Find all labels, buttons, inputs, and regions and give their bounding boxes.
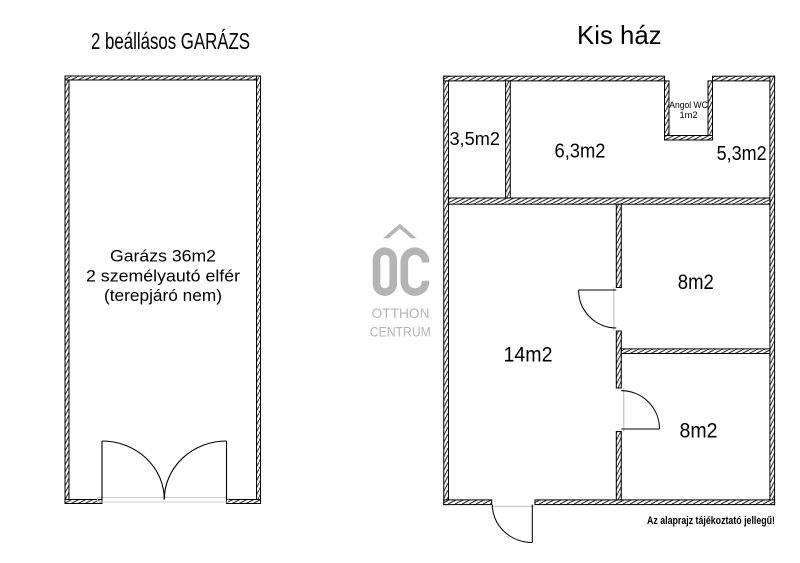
svg-text:2 személyautó elfér: 2 személyautó elfér [86, 268, 241, 286]
svg-text:OTTHON: OTTHON [372, 306, 430, 321]
svg-text:6,3m2: 6,3m2 [555, 140, 606, 163]
svg-text:8m2: 8m2 [678, 270, 714, 294]
svg-text:Kis ház: Kis ház [577, 20, 662, 50]
svg-text:8m2: 8m2 [680, 419, 718, 443]
svg-text:14m2: 14m2 [504, 343, 553, 367]
svg-text:Garázs 36m2: Garázs 36m2 [110, 248, 216, 266]
svg-text:(terepjáró nem): (terepjáró nem) [104, 287, 222, 305]
svg-text:CENTRUM: CENTRUM [370, 324, 431, 339]
svg-text:Angol WC: Angol WC [669, 100, 708, 110]
svg-text:2 beállásos GARÁZS: 2 beállásos GARÁZS [91, 28, 250, 54]
svg-text:1m2: 1m2 [679, 110, 697, 120]
svg-text:3,5m2: 3,5m2 [449, 128, 500, 149]
svg-text:Az alaprajz tájékoztató jelleg: Az alaprajz tájékoztató jellegű! [647, 515, 775, 527]
svg-text:5,3m2: 5,3m2 [717, 142, 767, 165]
